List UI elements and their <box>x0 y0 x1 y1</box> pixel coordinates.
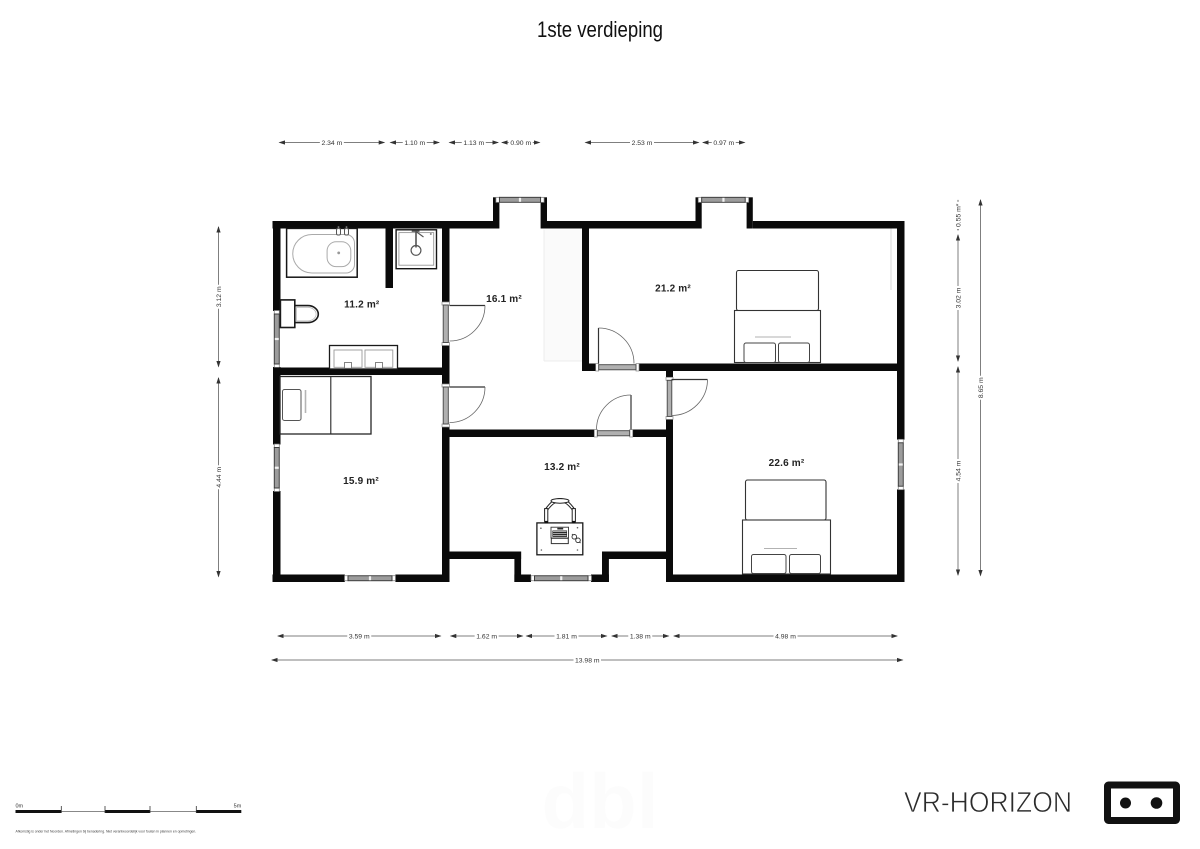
svg-text:3.02 m: 3.02 m <box>955 287 962 308</box>
svg-text:VR-HORIZON: VR-HORIZON <box>904 787 1072 819</box>
svg-text:16.1 m²: 16.1 m² <box>486 294 522 305</box>
svg-text:8.65 m: 8.65 m <box>978 377 985 398</box>
svg-text:2.53 m: 2.53 m <box>632 140 653 147</box>
svg-text:0m: 0m <box>16 804 24 810</box>
svg-text:Afkomstig is onder het Noorden: Afkomstig is onder het Noorden. Afmeting… <box>16 829 197 833</box>
svg-text:4.44 m: 4.44 m <box>216 467 223 488</box>
svg-text:1.10 m: 1.10 m <box>404 140 425 147</box>
svg-text:22.6 m²: 22.6 m² <box>769 458 805 469</box>
svg-text:4.98 m: 4.98 m <box>775 633 796 640</box>
svg-text:13.2 m²: 13.2 m² <box>544 462 580 473</box>
svg-text:1.62 m: 1.62 m <box>476 633 497 640</box>
svg-text:15.9 m²: 15.9 m² <box>343 476 379 487</box>
svg-text:1.81 m: 1.81 m <box>556 633 577 640</box>
svg-text:3.59 m: 3.59 m <box>349 633 370 640</box>
svg-text:1.13 m: 1.13 m <box>463 140 484 147</box>
svg-text:4.54 m: 4.54 m <box>955 460 962 481</box>
svg-text:dbl: dbl <box>542 757 659 845</box>
svg-text:11.2 m²: 11.2 m² <box>344 300 380 311</box>
svg-text:0.97 m: 0.97 m <box>713 140 734 147</box>
svg-text:3.12 m: 3.12 m <box>216 286 223 307</box>
svg-text:2.34 m: 2.34 m <box>321 140 342 147</box>
svg-text:13.98 m: 13.98 m <box>575 657 600 664</box>
svg-text:1ste verdieping: 1ste verdieping <box>537 17 663 42</box>
svg-text:0.90 m: 0.90 m <box>510 140 531 147</box>
svg-text:5m: 5m <box>234 804 242 810</box>
svg-text:1.38 m: 1.38 m <box>630 633 651 640</box>
svg-text:21.2 m²: 21.2 m² <box>655 284 691 295</box>
svg-text:0.55 m*: 0.55 m* <box>955 203 962 227</box>
